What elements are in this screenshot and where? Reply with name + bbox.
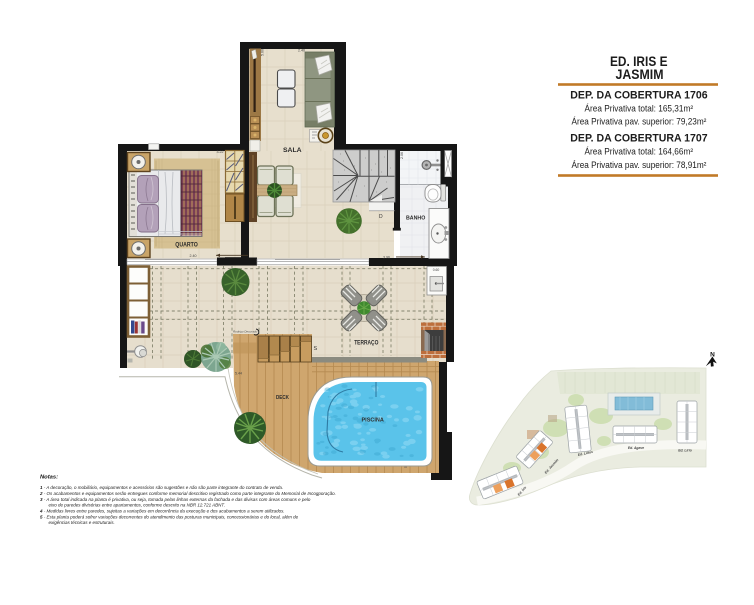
svg-text:BANHO: BANHO — [406, 215, 426, 221]
svg-text:Ed. Lírio: Ed. Lírio — [678, 449, 692, 453]
svg-text:Área Privativa pav. superior:: Área Privativa pav. superior: 79,23m² — [572, 117, 707, 127]
svg-text:exigências técnicas e estrutur: exigências técnicas e estruturais. — [49, 520, 115, 525]
svg-text:S: S — [314, 346, 318, 352]
svg-text:D: D — [379, 214, 383, 220]
svg-text:JASMIM: JASMIM — [616, 67, 664, 82]
svg-text:Área Privativa pav. superior:: Área Privativa pav. superior: 78,91m² — [572, 160, 707, 170]
svg-text:DEP. DA COBERTURA 1707: DEP. DA COBERTURA 1707 — [570, 133, 707, 145]
svg-text:SALA: SALA — [283, 147, 302, 154]
svg-text:eixo de paredes divisórias ent: eixo de paredes divisórias entre apartam… — [49, 503, 226, 508]
svg-text:4 - Medidas livres entre pared: 4 - Medidas livres entre paredes, sujeit… — [39, 509, 285, 514]
svg-text:1 - A decoração, o mobiliário,: 1 - A decoração, o mobiliário, equipamen… — [40, 485, 283, 490]
svg-text:Área Privativa total: 165,31m²: Área Privativa total: 165,31m² — [585, 104, 694, 114]
svg-text:2.06: 2.06 — [400, 152, 404, 159]
svg-text:5 - Esta planta poderá sofrer: 5 - Esta planta poderá sofrer variações … — [40, 514, 299, 519]
svg-text:5.60: 5.60 — [261, 49, 265, 56]
svg-text:Rodrigo Decorado: Rodrigo Decorado — [233, 330, 258, 334]
svg-text:QUARTO: QUARTO — [175, 241, 198, 248]
svg-text:Área Privativa total: 164,66m²: Área Privativa total: 164,66m² — [585, 147, 694, 157]
svg-text:2 - Os acabamentos e equipamen: 2 - Os acabamentos e equipamentos serão … — [39, 491, 336, 496]
svg-text:5.44: 5.44 — [235, 372, 242, 376]
svg-text:2.40: 2.40 — [298, 48, 305, 52]
svg-text:3.96: 3.96 — [383, 255, 390, 259]
svg-text:PISCINA: PISCINA — [362, 417, 385, 423]
svg-text:DECK: DECK — [276, 395, 290, 401]
svg-text:2.40: 2.40 — [190, 254, 197, 258]
svg-text:DEP. DA COBERTURA 1706: DEP. DA COBERTURA 1706 — [570, 90, 707, 102]
svg-text:0.60: 0.60 — [433, 268, 440, 272]
svg-text:Ed. Agave: Ed. Agave — [628, 446, 644, 450]
svg-text:Notas:: Notas: — [40, 475, 58, 481]
svg-text:TERRAÇO: TERRAÇO — [354, 339, 378, 346]
svg-text:3 - A área total indicada na p: 3 - A área total indicada na planta é pr… — [40, 497, 311, 502]
svg-text:3.22: 3.22 — [217, 150, 224, 154]
